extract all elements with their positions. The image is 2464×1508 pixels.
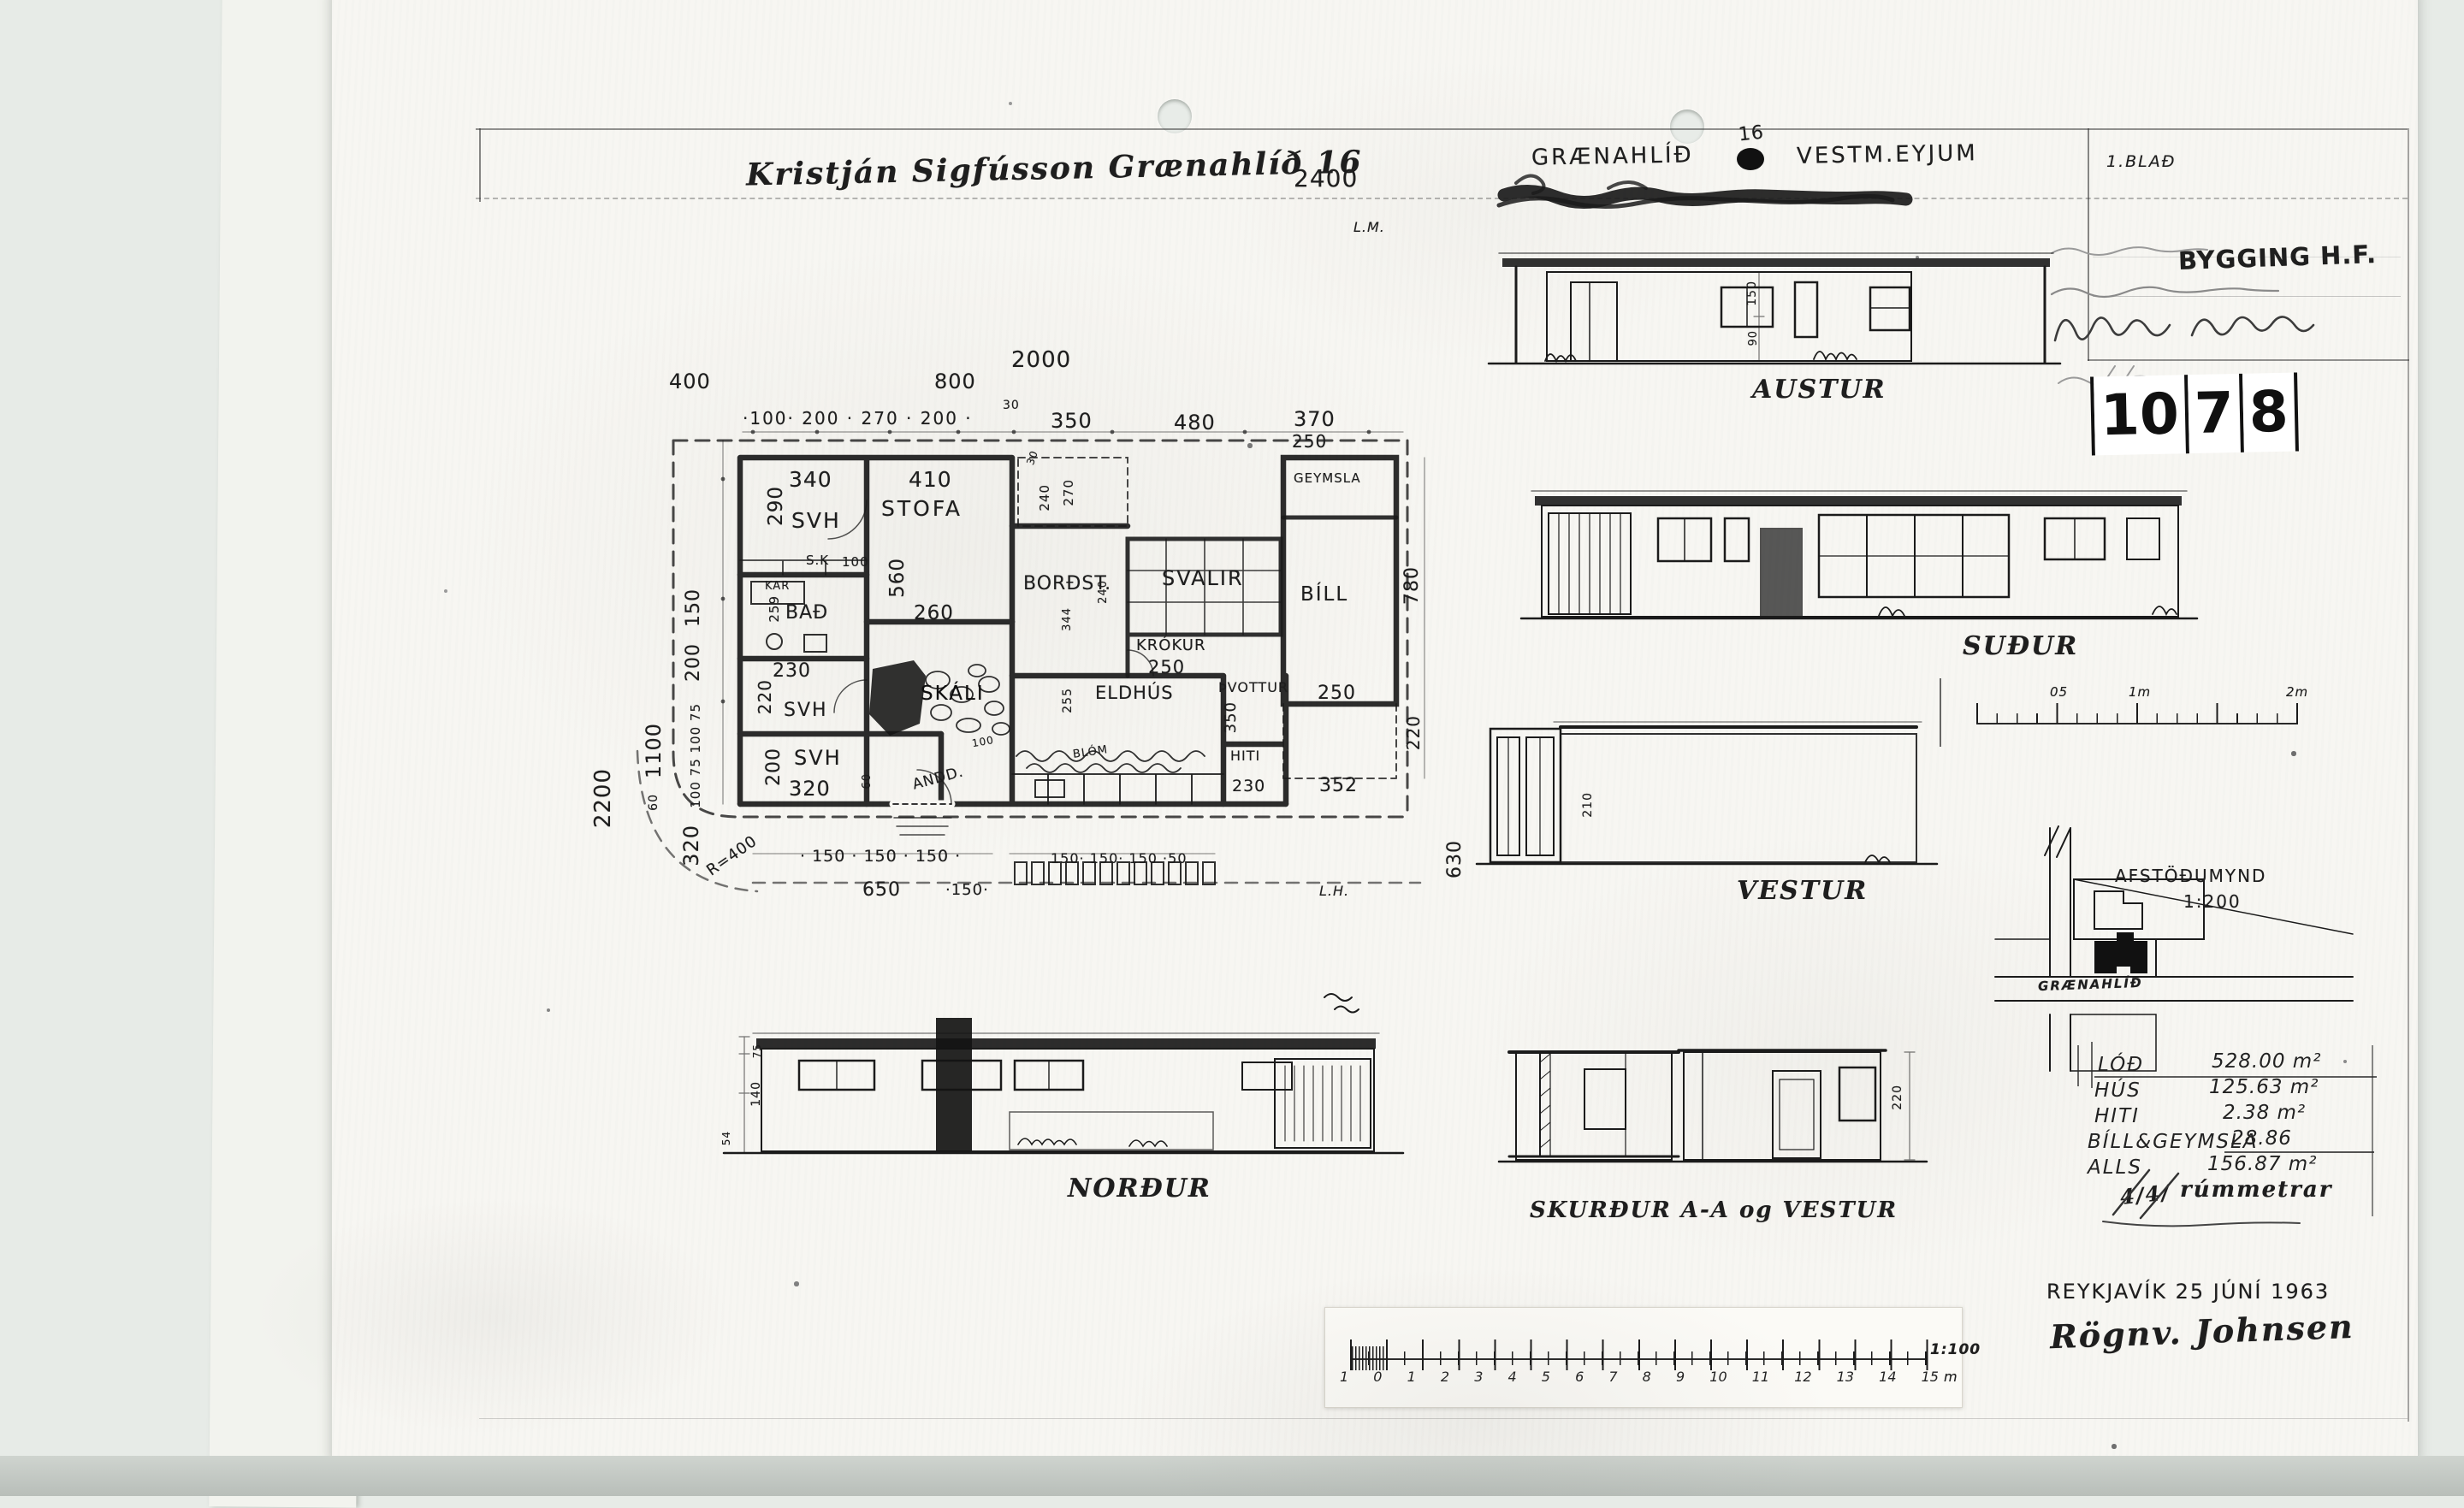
scale-tick-label: 7	[1608, 1369, 1617, 1385]
main-scale-unit: m	[1944, 1369, 1958, 1385]
scale-tick-label: 10	[1709, 1369, 1727, 1385]
scale-tick-label: 14	[1879, 1369, 1896, 1385]
scale-tick-label: 2	[1441, 1369, 1449, 1385]
scale-tick-label: 8	[1643, 1369, 1651, 1385]
scale-tick-label: 3	[1474, 1369, 1483, 1385]
main-scale-ratio: 1:100	[1930, 1341, 1981, 1358]
scale-tick-label: 11	[1752, 1369, 1769, 1385]
scale-tick-label: 13	[1837, 1369, 1854, 1385]
scale-tick-label: 5	[1542, 1369, 1550, 1385]
scale-tick-label: 9	[1676, 1369, 1685, 1385]
scale-tick-label: 4	[1507, 1369, 1516, 1385]
scale-tick-label: 1	[1340, 1369, 1348, 1385]
place-date: REYKJAVÍK 25 JÚNÍ 1963	[2046, 1280, 2330, 1304]
scale-tick-label: 6	[1575, 1369, 1584, 1385]
scale-tick-label: 15	[1922, 1369, 1939, 1385]
scale-tick-label: 0	[1373, 1369, 1382, 1385]
scale-tick-label: 12	[1794, 1369, 1811, 1385]
main-scale-minor-ticks	[1350, 1351, 1928, 1365]
note-strike-scribble	[0, 0, 2464, 1496]
main-scale-fine-ticks	[1352, 1346, 1386, 1370]
scale-tick-label: 1	[1407, 1369, 1416, 1385]
main-scale-labels: 1 0 1 2 3 4 5 6 7 8 9 10 11 12 13 14 15	[1340, 1369, 1939, 1385]
